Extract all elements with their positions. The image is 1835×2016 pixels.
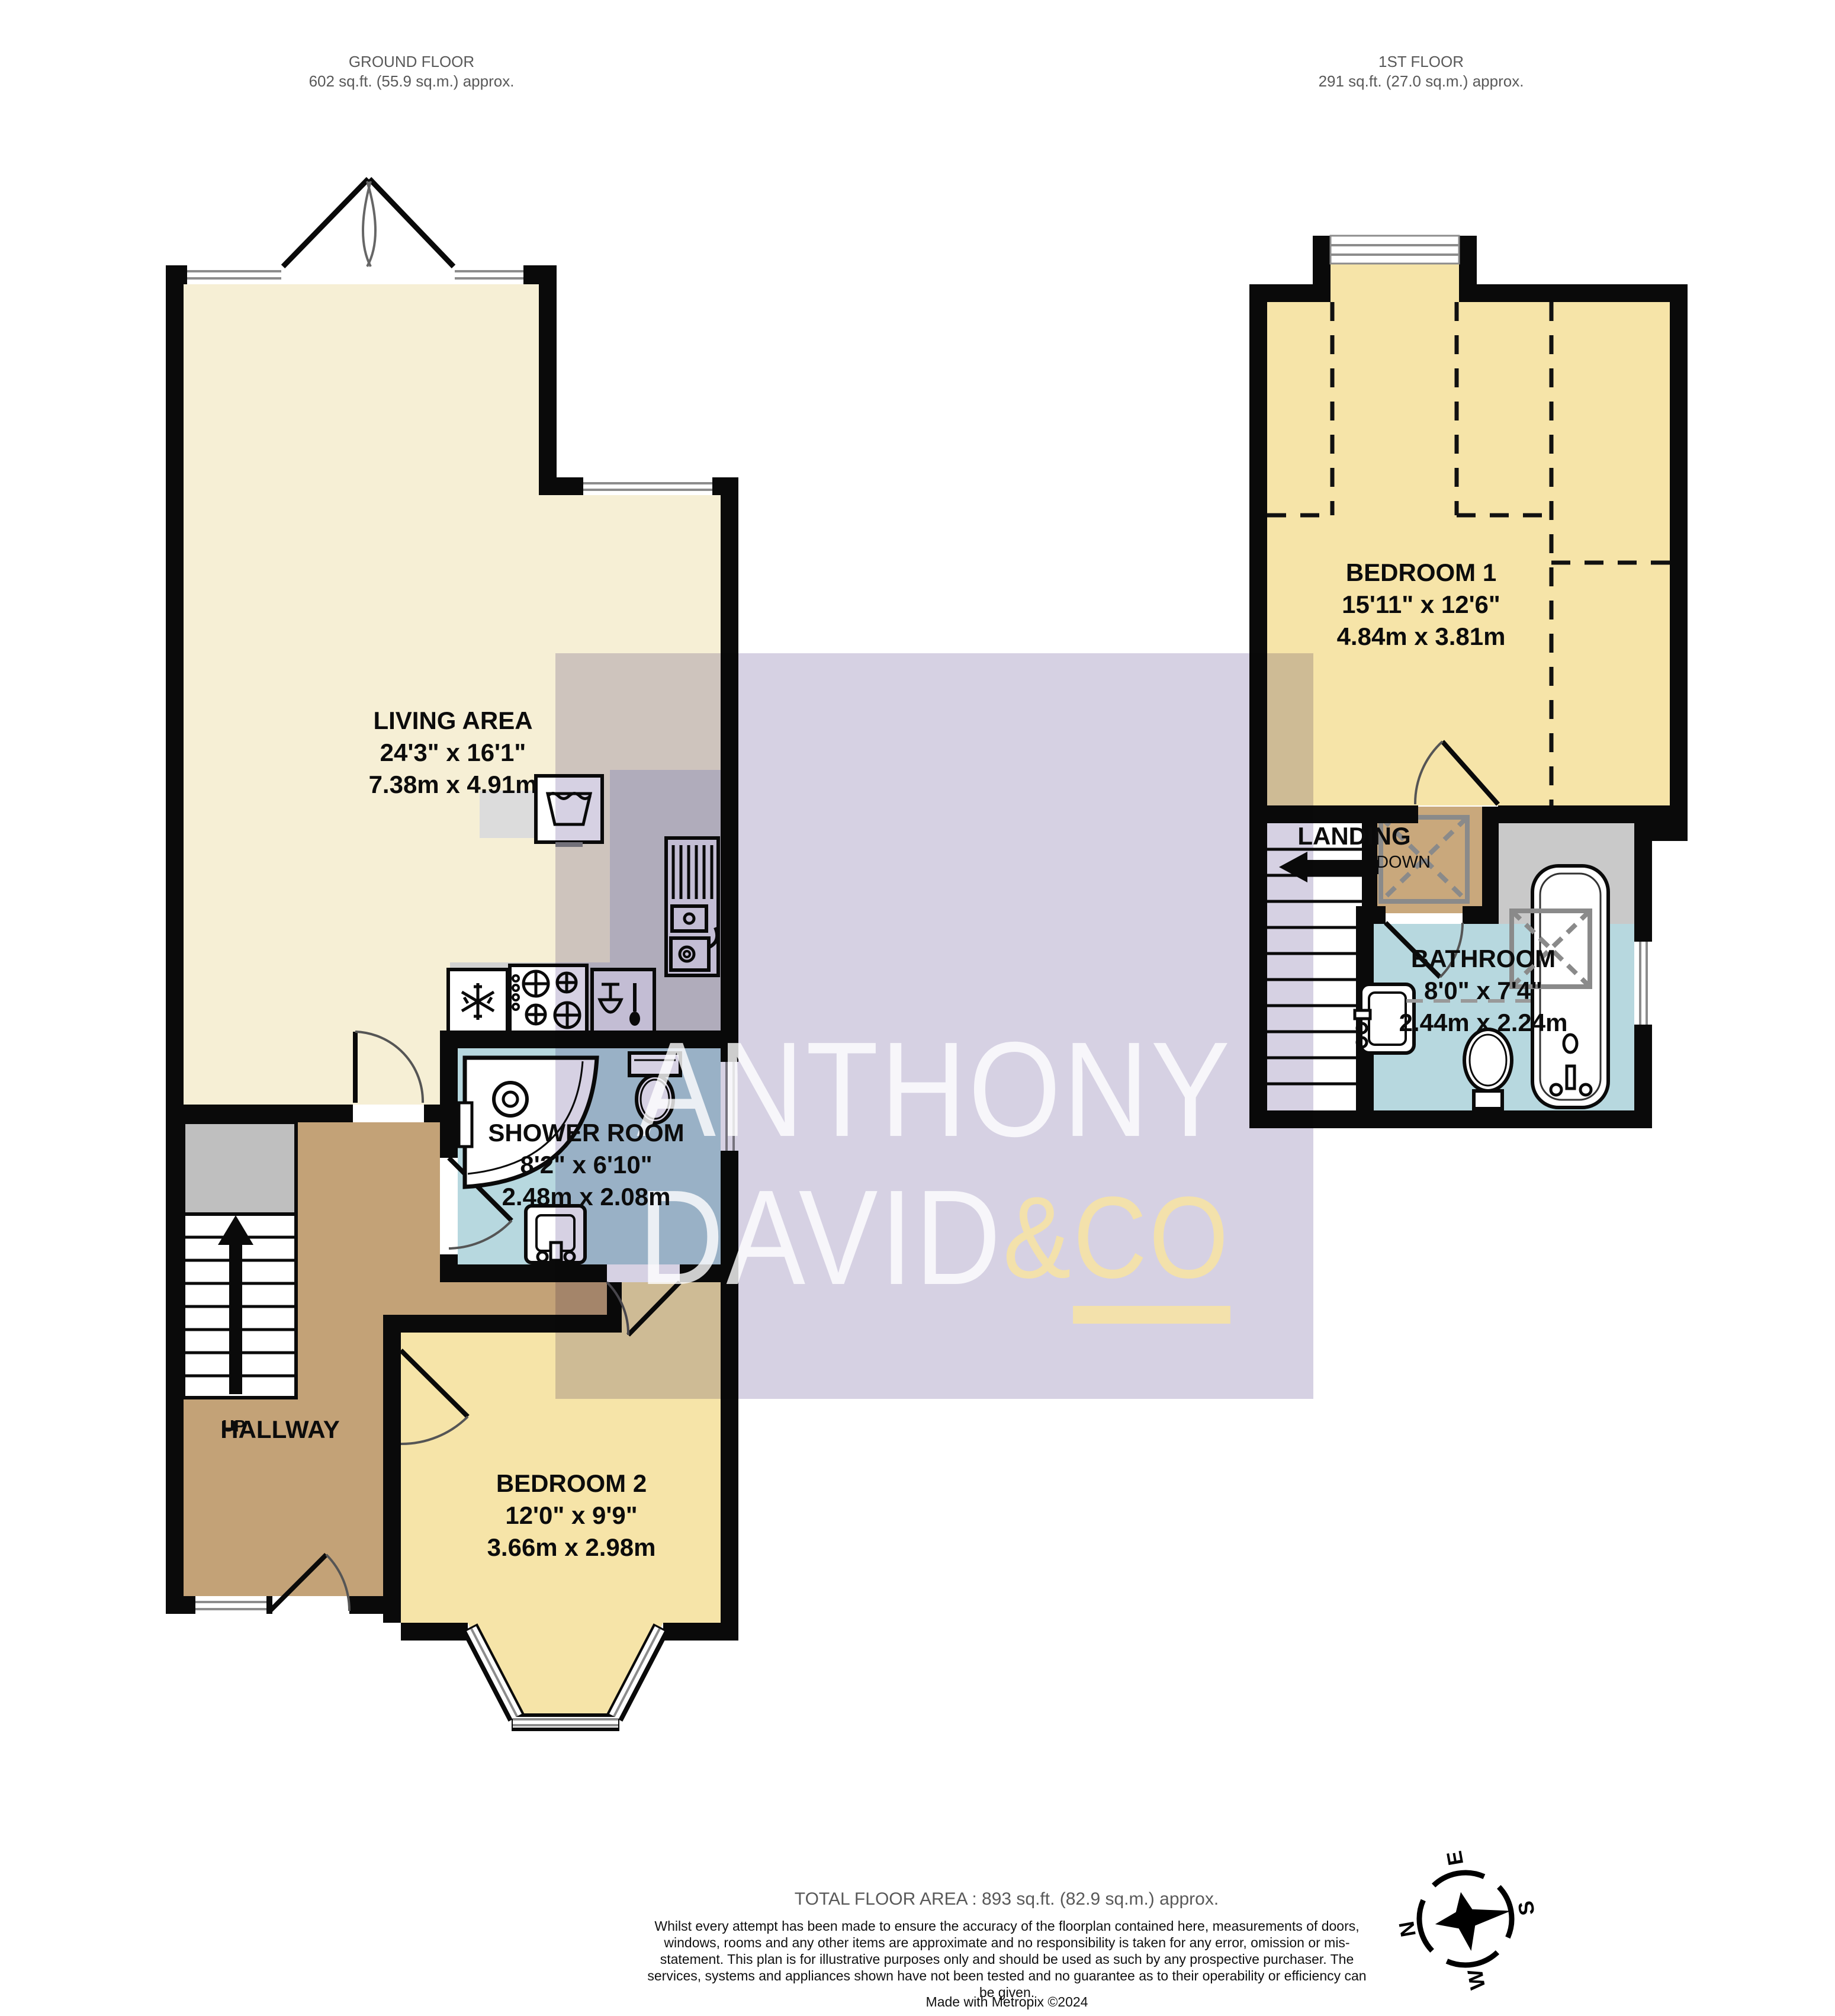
compass-rose-icon: N E S W <box>1383 1838 1550 2002</box>
total-floor-area: TOTAL FLOOR AREA : 893 sq.ft. (82.9 sq.m… <box>563 1889 1451 1909</box>
landing-label: LANDING <box>1265 822 1443 850</box>
room-size-metric: 7.38m x 4.91m <box>305 769 601 801</box>
bedroom1-label: BEDROOM 1 15'11" x 12'6" 4.84m x 3.81m <box>1273 557 1569 653</box>
chimney-breast <box>184 1122 296 1214</box>
shower-room-label: SHOWER ROOM 8'2" x 6'10" 2.48m x 2.08m <box>438 1117 734 1213</box>
ground-floor-header: GROUND FLOOR 602 sq.ft. (55.9 sq.m.) app… <box>263 52 560 91</box>
stairs-up <box>184 1214 296 1398</box>
room-name: BEDROOM 1 <box>1273 557 1569 589</box>
room-size-imperial: 12'0" x 9'9" <box>423 1500 719 1532</box>
bedroom2-label: BEDROOM 2 12'0" x 9'9" 3.66m x 2.98m <box>423 1468 719 1564</box>
made-with-credit: Made with Metropix ©2024 <box>647 1994 1367 2010</box>
living-area-label: LIVING AREA 24'3" x 16'1" 7.38m x 4.91m <box>305 705 601 801</box>
room-size-metric: 2.48m x 2.08m <box>438 1181 734 1213</box>
watermark-co: CO <box>1073 1173 1230 1324</box>
room-size-imperial: 8'0" x 7'4" <box>1335 975 1631 1007</box>
watermark-amp: & <box>1003 1173 1074 1302</box>
french-doors-icon <box>283 179 454 267</box>
first-floor-area: 291 sq.ft. (27.0 sq.m.) approx. <box>1273 72 1569 91</box>
bedroom1-floor <box>1267 264 1670 805</box>
room-size-imperial: 24'3" x 16'1" <box>305 737 601 769</box>
ground-floor-area: 602 sq.ft. (55.9 sq.m.) approx. <box>263 72 560 91</box>
room-size-metric: 4.84m x 3.81m <box>1273 621 1569 653</box>
compass-w: W <box>1463 1967 1490 1992</box>
watermark-and-co: &CO <box>1003 1164 1230 1312</box>
compass-e: E <box>1442 1849 1468 1867</box>
down-label: DOWN <box>1362 853 1445 872</box>
window-icon <box>1634 942 1652 1025</box>
bathroom-label: BATHROOM 8'0" x 7'4" 2.44m x 2.24m <box>1335 943 1631 1039</box>
room-size-imperial: 15'11" x 12'6" <box>1273 589 1569 621</box>
ground-floor-title: GROUND FLOOR <box>263 52 560 72</box>
room-name: BEDROOM 2 <box>423 1468 719 1500</box>
dormer-window-icon <box>1331 236 1459 264</box>
compass-n: N <box>1394 1919 1421 1939</box>
hallway-label: HALLWAY <box>162 1415 399 1444</box>
room-size-imperial: 8'2" x 6'10" <box>438 1149 734 1181</box>
disclaimer-text: Whilst every attempt has been made to en… <box>647 1918 1367 2001</box>
first-floor-header: 1ST FLOOR 291 sq.ft. (27.0 sq.m.) approx… <box>1273 52 1569 91</box>
room-name: BATHROOM <box>1335 943 1631 975</box>
compass-s: S <box>1513 1899 1540 1918</box>
fridge-icon <box>448 970 507 1032</box>
up-label: UP <box>213 1417 255 1436</box>
room-size-metric: 2.44m x 2.24m <box>1335 1007 1631 1039</box>
room-size-metric: 3.66m x 2.98m <box>423 1532 719 1564</box>
room-name: SHOWER ROOM <box>438 1117 734 1149</box>
first-floor-title: 1ST FLOOR <box>1273 52 1569 72</box>
room-name: LIVING AREA <box>305 705 601 737</box>
